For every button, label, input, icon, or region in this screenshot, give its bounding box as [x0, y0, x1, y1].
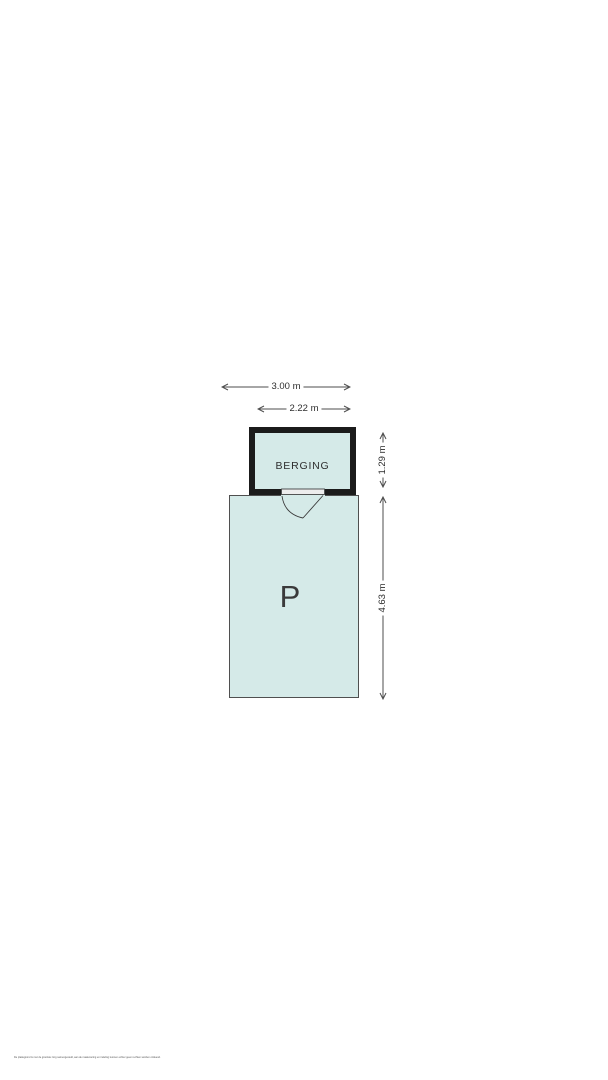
- dimension-top-outer: 3.00 m: [221, 382, 351, 392]
- door-icon: [272, 484, 342, 524]
- disclaimer-text: De plattegrond is met de grootste zorg s…: [14, 1056, 161, 1059]
- floorplan-canvas: 3.00 m 2.22 m BERGING P 1.29 m: [0, 0, 608, 1080]
- dimension-label-right-lower: 4.63 m: [377, 580, 389, 615]
- parking-area: P: [229, 495, 359, 698]
- dimension-label-top-inner: 2.22 m: [286, 404, 321, 414]
- dimension-label-right-upper: 1.29 m: [377, 442, 389, 477]
- room-label-berging: BERGING: [275, 460, 329, 472]
- room-label-parking: P: [280, 579, 301, 615]
- dimension-label-top-outer: 3.00 m: [268, 382, 303, 392]
- dimension-right-lower: 4.63 m: [378, 496, 388, 700]
- berging-floor: BERGING: [255, 433, 350, 489]
- dimension-right-upper: 1.29 m: [378, 432, 388, 488]
- dimension-top-inner: 2.22 m: [257, 404, 351, 414]
